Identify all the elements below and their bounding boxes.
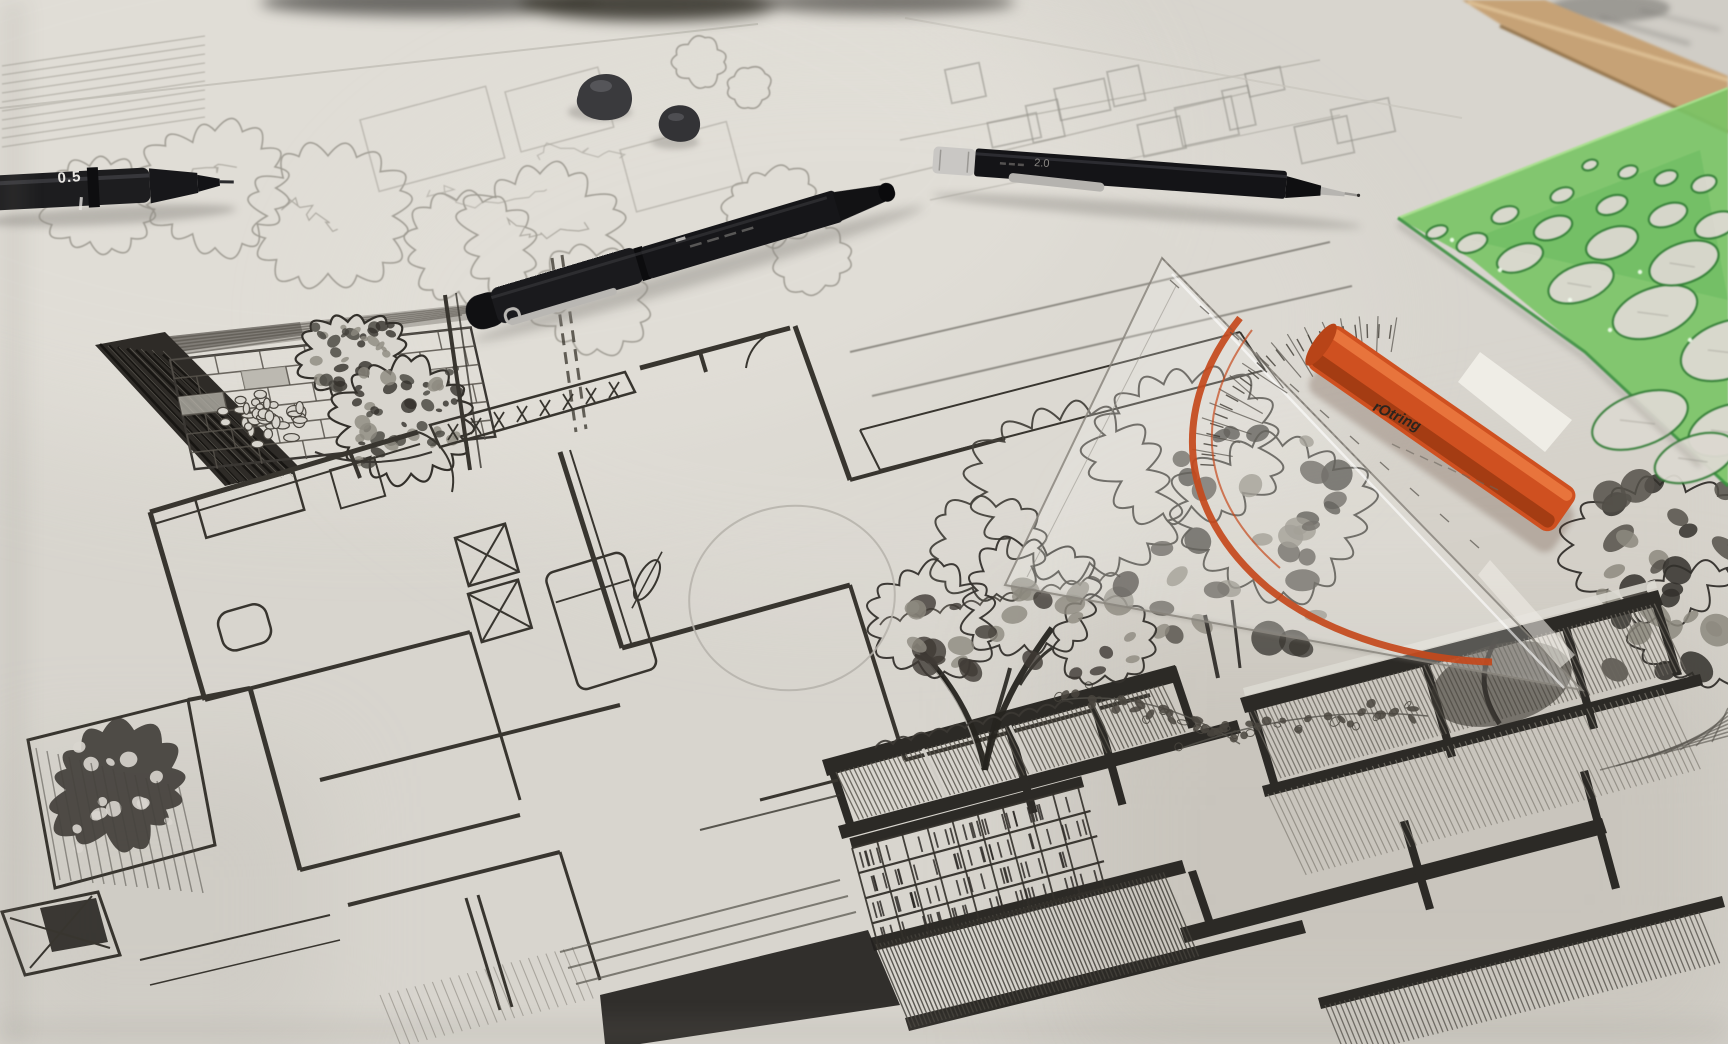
pencil-size-label: 2.0: [1034, 157, 1050, 170]
pen-tip-size-label: 0.5: [57, 168, 82, 187]
drafting-table-photo: 0.5 2.0 rOtring: [0, 0, 1728, 1044]
scene-canvas: 0.5 2.0 rOtring: [0, 0, 1728, 1044]
eraser-piece-2: [659, 105, 700, 142]
